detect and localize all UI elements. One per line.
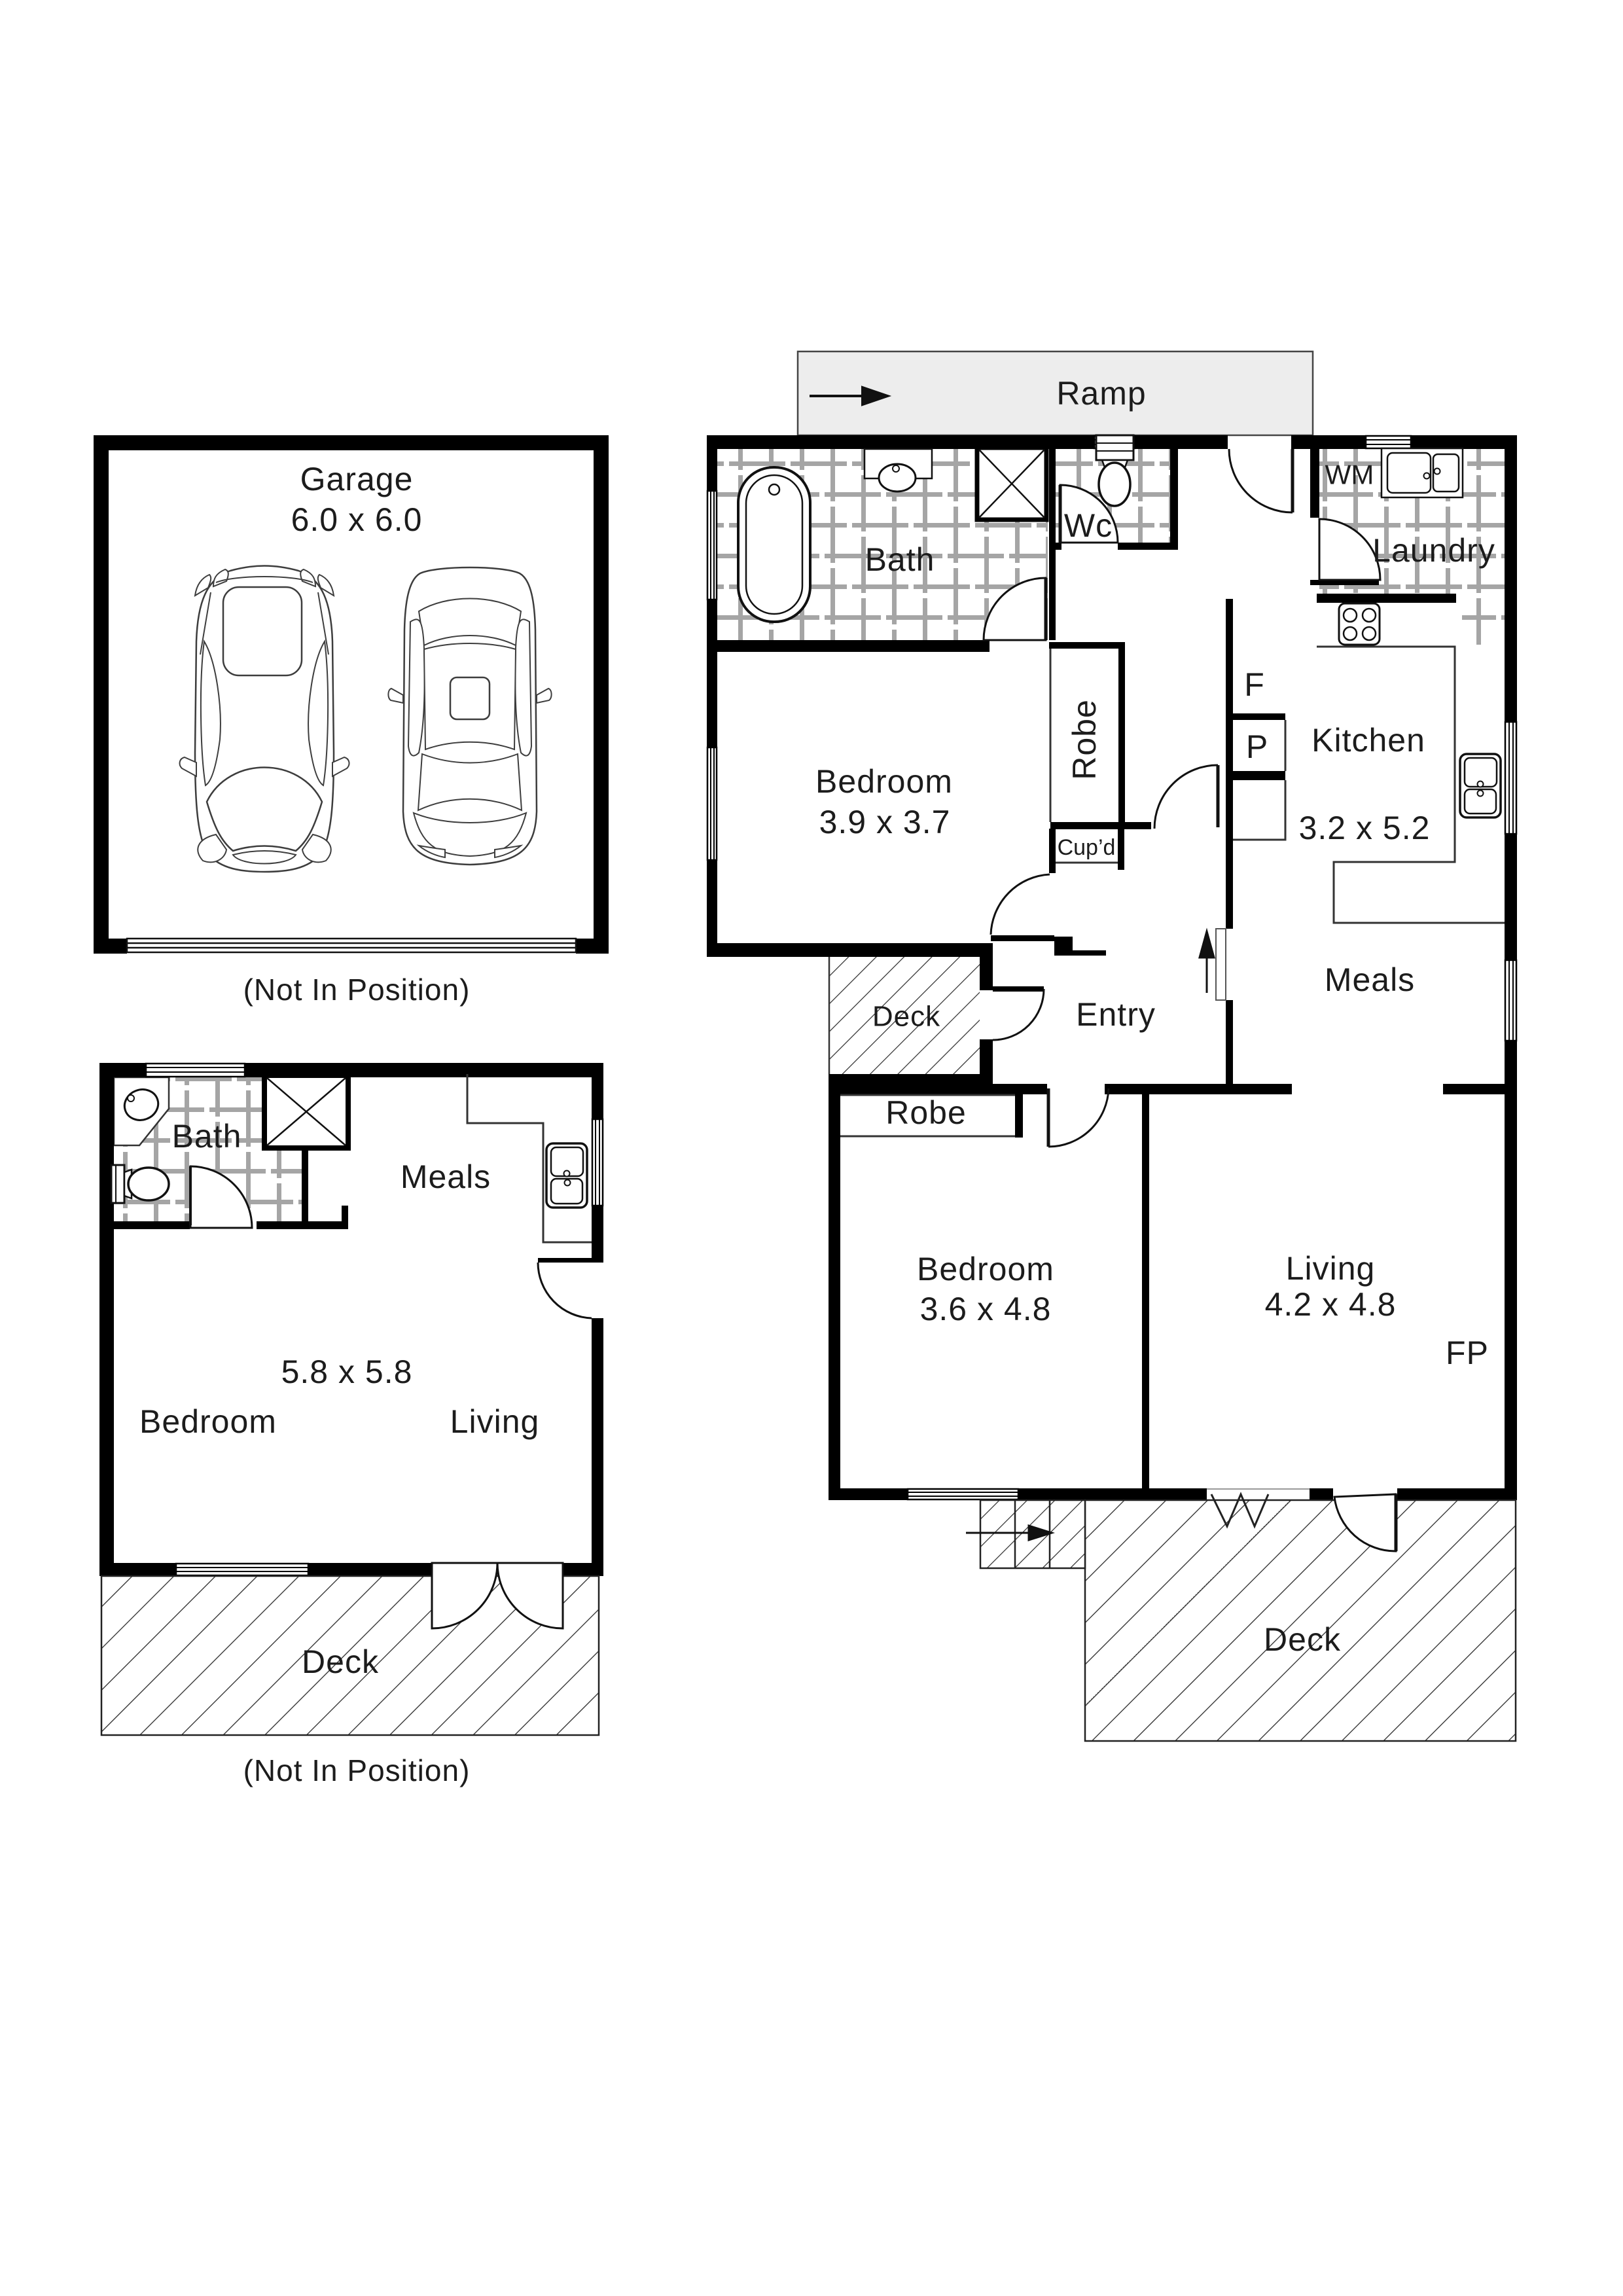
svg-text:Deck: Deck: [302, 1643, 379, 1680]
svg-text:Bedroom: Bedroom: [139, 1403, 277, 1440]
svg-text:(Not In Position): (Not In Position): [243, 1753, 471, 1787]
svg-text:Garage: Garage: [300, 461, 414, 497]
svg-text:Meals: Meals: [401, 1158, 491, 1195]
svg-text:FP: FP: [1446, 1335, 1489, 1371]
svg-text:5.8 x 5.8: 5.8 x 5.8: [281, 1354, 413, 1390]
svg-text:WM: WM: [1325, 459, 1374, 490]
svg-text:6.0 x 6.0: 6.0 x 6.0: [291, 501, 423, 538]
svg-text:Cup’d: Cup’d: [1058, 835, 1116, 860]
svg-text:Robe: Robe: [1066, 699, 1103, 780]
svg-text:4.2 x 4.8: 4.2 x 4.8: [1265, 1286, 1397, 1323]
svg-text:Bedroom: Bedroom: [917, 1251, 1054, 1287]
svg-text:F: F: [1244, 666, 1265, 703]
svg-text:Deck: Deck: [872, 1001, 940, 1033]
svg-text:Living: Living: [1286, 1250, 1376, 1287]
svg-text:Living: Living: [450, 1403, 540, 1440]
svg-text:P: P: [1246, 728, 1268, 765]
svg-text:Deck: Deck: [1264, 1621, 1341, 1658]
svg-text:Bedroom: Bedroom: [815, 763, 953, 800]
svg-text:3.9 x 3.7: 3.9 x 3.7: [819, 804, 951, 840]
svg-text:3.2 x 5.2: 3.2 x 5.2: [1299, 810, 1431, 846]
svg-text:Wc: Wc: [1064, 507, 1113, 544]
svg-text:Kitchen: Kitchen: [1311, 722, 1425, 759]
svg-text:Ramp: Ramp: [1056, 375, 1146, 412]
svg-text:Meals: Meals: [1325, 961, 1415, 998]
svg-text:Bath: Bath: [865, 541, 935, 578]
svg-text:3.6 x 4.8: 3.6 x 4.8: [920, 1291, 1052, 1327]
svg-text:Laundry: Laundry: [1372, 532, 1495, 569]
svg-text:Robe: Robe: [885, 1094, 967, 1131]
svg-text:(Not In Position): (Not In Position): [243, 973, 471, 1007]
svg-text:Bath: Bath: [172, 1118, 242, 1155]
svg-text:Entry: Entry: [1076, 996, 1156, 1033]
